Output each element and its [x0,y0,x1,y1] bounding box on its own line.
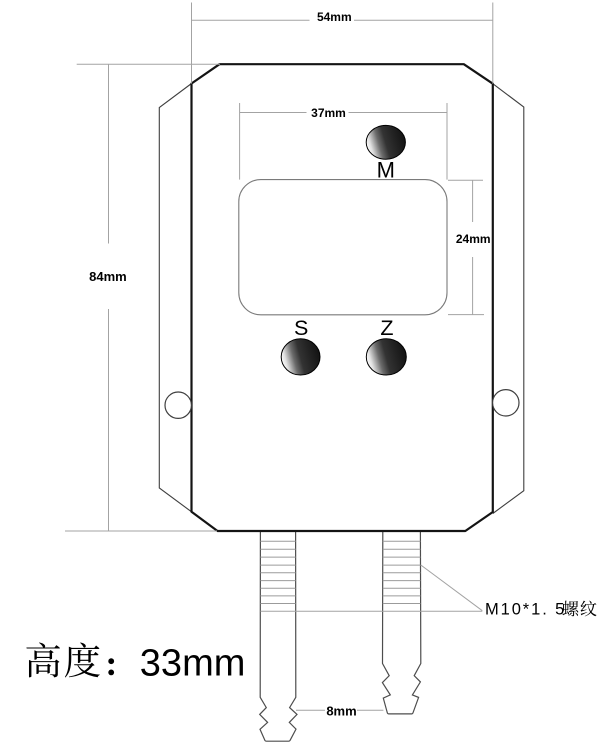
svg-text:24mm: 24mm [456,232,491,246]
svg-text:M10*1. 5: M10*1. 5 [485,601,566,619]
svg-text:Z: Z [380,316,393,340]
svg-text:37mm: 37mm [311,106,346,120]
svg-text:84mm: 84mm [89,269,127,284]
svg-text:8mm: 8mm [326,704,356,719]
svg-text:54mm: 54mm [317,10,352,24]
svg-text:M: M [377,157,395,182]
svg-text:33mm: 33mm [140,643,246,685]
svg-text:S: S [294,316,308,340]
